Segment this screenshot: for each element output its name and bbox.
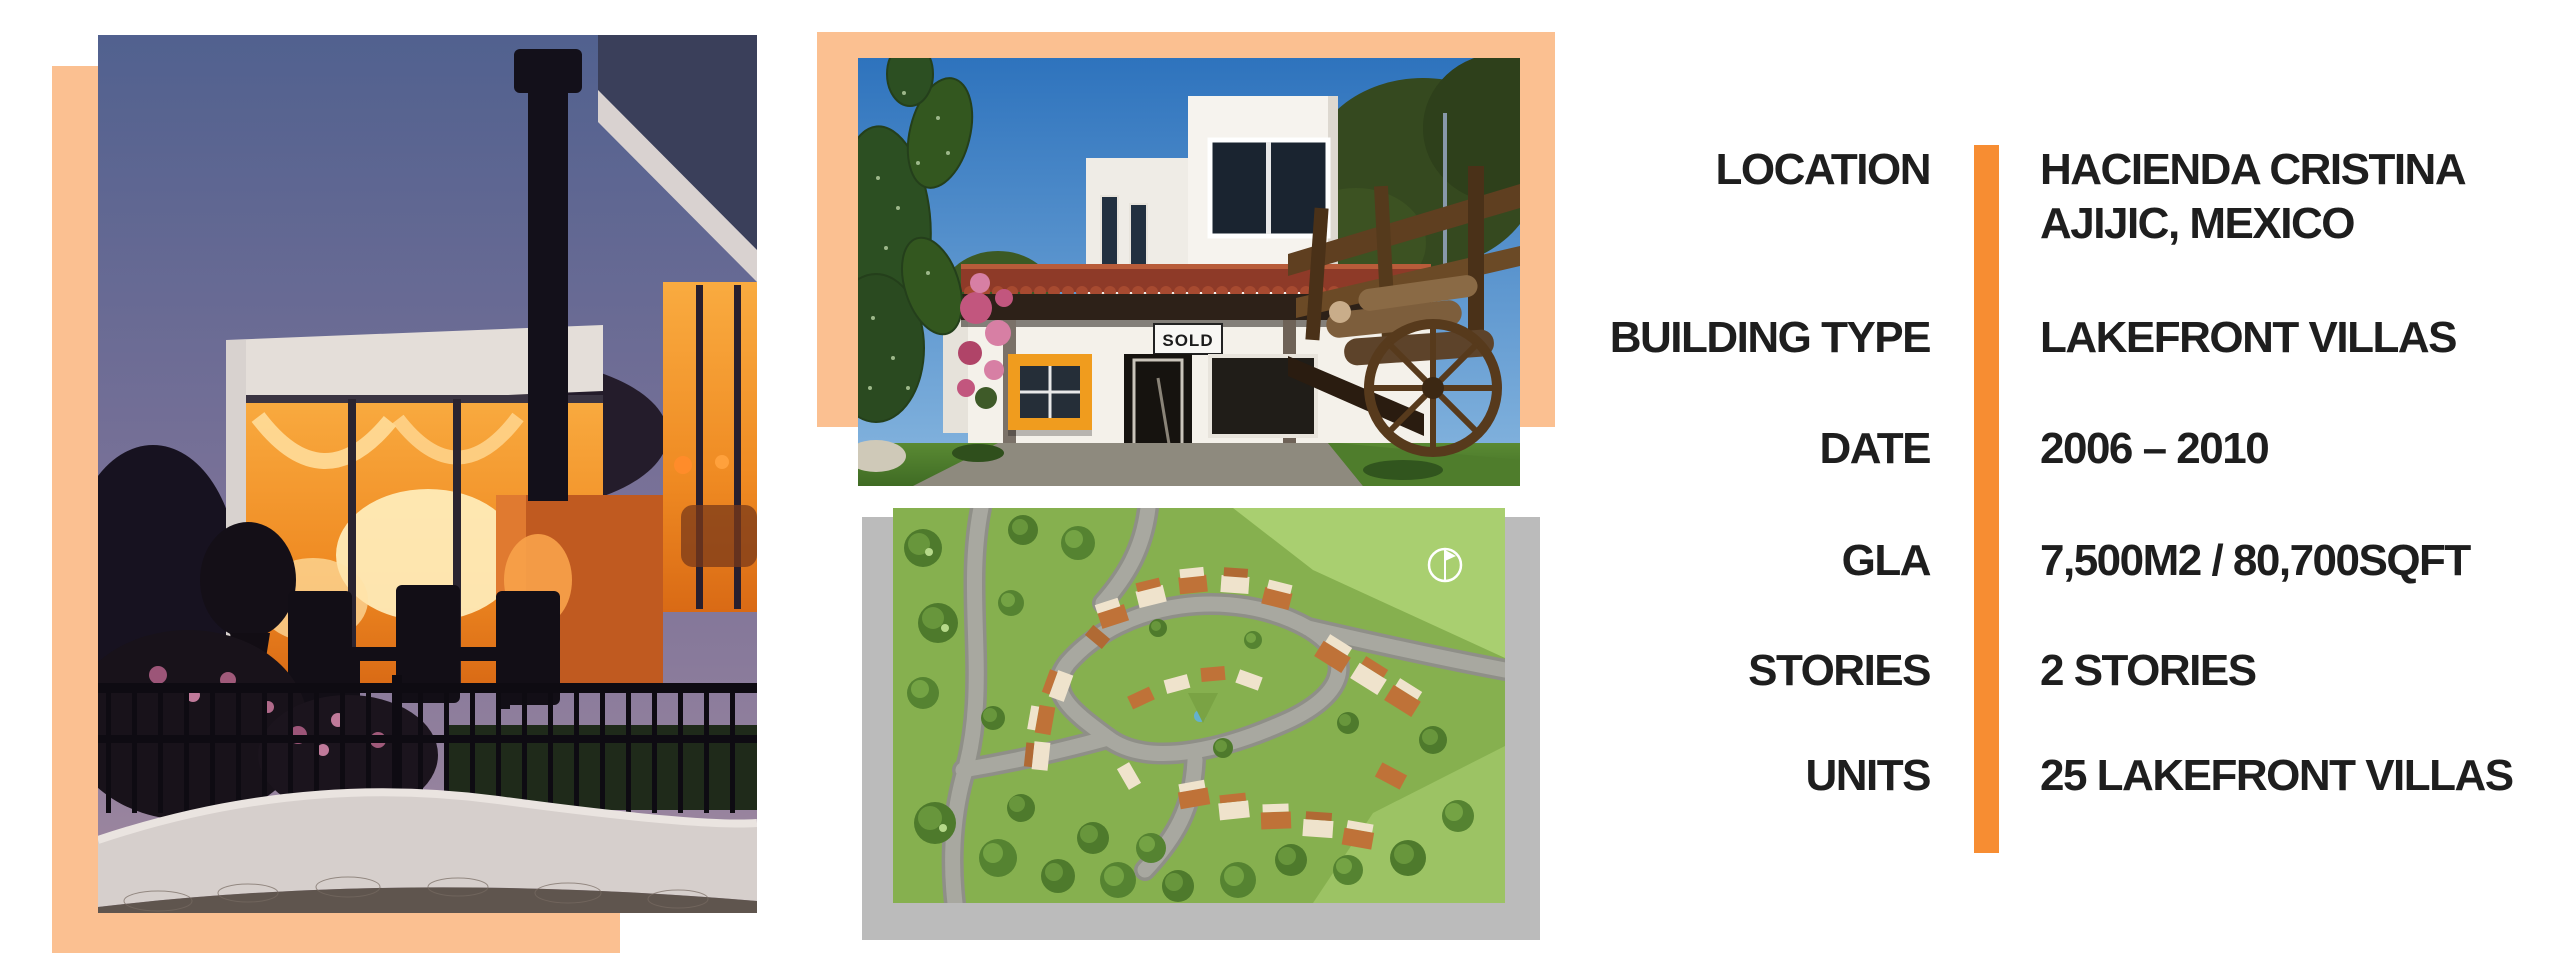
label-units: UNITS: [1480, 749, 1930, 803]
photo-dusk-villa: [98, 35, 757, 913]
site-plan-scene: [893, 508, 1505, 903]
value-stories: 2 STORIES: [2040, 644, 2560, 698]
label-stories: STORIES: [1480, 644, 1930, 698]
value-location-line1: HACIENDA CRISTINA: [2040, 143, 2560, 197]
value-building-type: LAKEFRONT VILLAS: [2040, 311, 2560, 365]
sold-sign: SOLD: [1154, 324, 1222, 354]
orange-divider-bar: [1974, 145, 1999, 853]
label-location: LOCATION: [1480, 143, 1930, 197]
label-building-type: BUILDING TYPE: [1480, 311, 1930, 365]
value-location-line2: AJIJIC, MEXICO: [2040, 197, 2560, 251]
value-gla: 7,500M2 / 80,700SQFT: [2040, 534, 2560, 588]
value-units: 25 LAKEFRONT VILLAS: [2040, 749, 2560, 803]
orange-framed-window: [1008, 354, 1092, 436]
portfolio-slide: { "details": { "rows": [ { "label": "LOC…: [0, 0, 2560, 968]
photo-white-house: SOLD: [858, 58, 1520, 486]
label-date: DATE: [1480, 422, 1930, 476]
dusk-villa-scene: [98, 35, 757, 913]
label-gla: GLA: [1480, 534, 1930, 588]
sold-sign-text: SOLD: [1162, 331, 1213, 350]
white-house-scene: SOLD: [858, 58, 1520, 486]
value-date: 2006 – 2010: [2040, 422, 2560, 476]
chimney-pipe: [528, 53, 568, 501]
photo-site-plan: [893, 508, 1505, 903]
